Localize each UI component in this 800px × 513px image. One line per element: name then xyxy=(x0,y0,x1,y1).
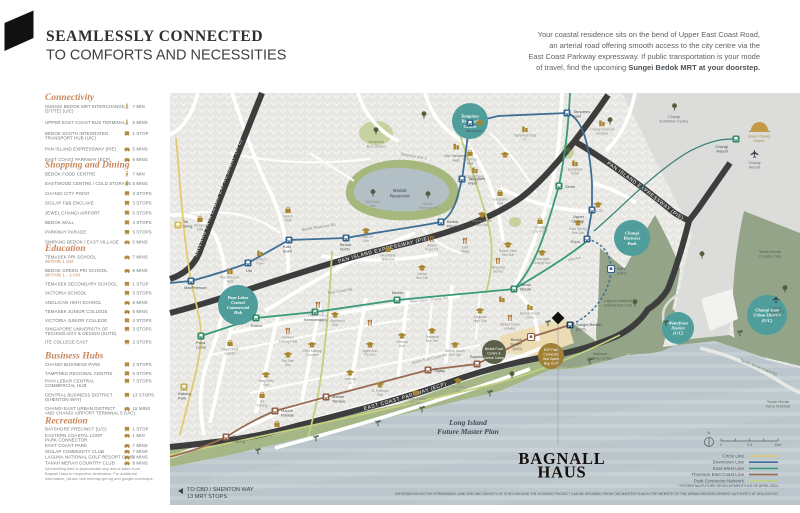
svg-text:VICTORIA SCHOOL: VICTORIA SCHOOL xyxy=(45,291,87,296)
svg-text:6 MINS: 6 MINS xyxy=(133,309,148,314)
svg-text:Circle Line: Circle Line xyxy=(722,454,744,459)
svg-text:3 STOPS: 3 STOPS xyxy=(133,291,152,296)
svg-text:Airport: Airport xyxy=(749,166,761,170)
svg-text:(U/C): (U/C) xyxy=(673,331,684,336)
svg-text:an arterial road offering smoo: an arterial road offering smooth access … xyxy=(549,41,760,50)
svg-text:Changi Sec: Changi Sec xyxy=(533,261,551,265)
svg-text:5 MINS: 5 MINS xyxy=(133,300,148,305)
svg-text:Mall: Mall xyxy=(227,280,233,284)
svg-text:Sec Sch: Sec Sch xyxy=(449,353,462,357)
svg-text:UPPER EAST COAST BUS TERMINAL: UPPER EAST COAST BUS TERMINAL xyxy=(45,120,126,125)
svg-text:WITHIN 1 KM: WITHIN 1 KM xyxy=(45,259,73,264)
svg-text:Hub: Hub xyxy=(453,159,460,163)
svg-text:5 STOPS: 5 STOPS xyxy=(133,371,152,376)
svg-text:HAUS: HAUS xyxy=(537,463,586,482)
svg-text:7 MIN: 7 MIN xyxy=(133,172,145,177)
svg-text:1km: 1km xyxy=(775,443,782,447)
svg-text:7 MINS: 7 MINS xyxy=(133,255,148,260)
svg-text:BEDOK FOOD CENTRE: BEDOK FOOD CENTRE xyxy=(45,172,95,177)
svg-text:5 STOPS: 5 STOPS xyxy=(133,210,152,215)
svg-text:Ubi: Ubi xyxy=(246,268,252,273)
svg-text:North: North xyxy=(340,247,350,252)
svg-text:Our Tampines: Our Tampines xyxy=(444,154,468,158)
svg-text:Airport: Airport xyxy=(753,139,765,143)
svg-text:N: N xyxy=(708,430,711,435)
svg-text:Pri Sch: Pri Sch xyxy=(411,401,422,405)
svg-text:TEMASEK JUNIOR COLLEGE: TEMASEK JUNIOR COLLEGE xyxy=(45,309,108,314)
svg-text:LAGUNA NATIONAL GOLF RESORT CL: LAGUNA NATIONAL GOLF RESORT CLUB xyxy=(45,455,134,460)
svg-text:Your coastal residence sits on: Your coastal residence sits on the bend … xyxy=(538,30,760,39)
svg-text:TANAH MERAH COUNTRY CLUB: TANAH MERAH COUNTRY CLUB xyxy=(45,460,115,465)
svg-text:High Sch: High Sch xyxy=(473,319,487,323)
svg-text:Park: Park xyxy=(178,396,186,401)
svg-text:JEWEL CHANGI AIRPORT: JEWEL CHANGI AIRPORT xyxy=(45,210,100,215)
svg-text:1 STOP: 1 STOP xyxy=(133,282,149,287)
svg-text:Ferry Terminal: Ferry Terminal xyxy=(766,405,790,409)
svg-text:CC: CC xyxy=(523,138,528,142)
svg-text:Pri Sch: Pri Sch xyxy=(470,179,481,183)
svg-text:information, please visit onem: information, please visit onemap.gov.sg … xyxy=(45,476,154,481)
svg-text:Food Ctr: Food Ctr xyxy=(425,248,439,252)
svg-text:(U/C): (U/C) xyxy=(576,327,586,332)
svg-text:Sch: Sch xyxy=(363,239,369,243)
svg-text:BAYSHORE PRECINCT (U/C): BAYSHORE PRECINCT (U/C) xyxy=(45,427,107,432)
svg-text:Park Connector Network: Park Connector Network xyxy=(694,478,745,483)
svg-text:SIGLAP F&B ENCLAVE: SIGLAP F&B ENCLAVE xyxy=(45,201,94,206)
svg-text:TRANSPORT HUB (U/C): TRANSPORT HUB (U/C) xyxy=(45,136,96,141)
svg-text:5 MINS: 5 MINS xyxy=(133,181,148,186)
svg-text:of travel, find the upcoming S: of travel, find the upcoming Sungei Bedo… xyxy=(536,63,760,72)
svg-text:Airport: Airport xyxy=(716,149,729,154)
svg-text:Bedok: Bedok xyxy=(393,188,407,193)
svg-text:1 MIN: 1 MIN xyxy=(133,433,145,438)
svg-text:Hospital: Hospital xyxy=(596,132,608,136)
svg-text:Bedok Camp: Bedok Camp xyxy=(484,356,504,360)
svg-text:PARKWAY PARADE: PARKWAY PARADE xyxy=(45,230,86,235)
svg-text:Camp: Camp xyxy=(525,316,534,320)
svg-text:Mall: Mall xyxy=(197,228,203,232)
svg-text:8 MINS: 8 MINS xyxy=(133,460,148,465)
svg-text:7 MINS: 7 MINS xyxy=(133,449,148,454)
svg-text:Sec Sch: Sec Sch xyxy=(502,253,515,257)
svg-text:JC: JC xyxy=(348,381,353,385)
svg-text:Mall: Mall xyxy=(285,219,291,223)
svg-text:5 MINS: 5 MINS xyxy=(133,147,148,152)
svg-text:Country Club: Country Club xyxy=(759,255,781,259)
svg-text:East Coast Parkway expressway.: East Coast Parkway expressway. If public… xyxy=(528,52,760,61)
svg-text:Siglap: Siglap xyxy=(434,368,446,373)
svg-text:MacPherson: MacPherson xyxy=(184,285,206,290)
svg-text:Long Island: Long Island xyxy=(448,418,487,427)
svg-text:7 STOPS: 7 STOPS xyxy=(133,379,152,384)
svg-text:Mall: Mall xyxy=(497,202,503,206)
svg-text:1 STOP: 1 STOP xyxy=(133,131,149,136)
svg-text:Quarter: Quarter xyxy=(224,352,236,356)
svg-text:WITHIN 1 - 2 KM: WITHIN 1 - 2 KM xyxy=(45,273,80,278)
svg-text:East-West Line: East-West Line xyxy=(713,466,745,471)
svg-text:CHANGI BUSINESS PARK: CHANGI BUSINESS PARK xyxy=(45,362,100,367)
svg-text:Sec Sch: Sec Sch xyxy=(416,276,429,280)
svg-text:PARK CONNECTOR: PARK CONNECTOR xyxy=(45,438,87,443)
svg-text:Changi: Changi xyxy=(748,161,760,165)
svg-text:Laguna National: Laguna National xyxy=(604,299,632,303)
svg-text:Business Hubs: Business Hubs xyxy=(44,352,104,362)
svg-text:1 STOP: 1 STOP xyxy=(133,427,149,432)
svg-text:F&B Enclave: F&B Enclave xyxy=(308,314,328,318)
svg-text:Eunos: Eunos xyxy=(251,323,262,328)
svg-text:13 MRT STOPS: 13 MRT STOPS xyxy=(187,494,227,500)
svg-text:TAMPINES REGIONAL CENTRE: TAMPINES REGIONAL CENTRE xyxy=(45,371,113,376)
svg-text:4 STOPS: 4 STOPS xyxy=(133,318,152,323)
svg-text:Sec Sch: Sec Sch xyxy=(572,231,585,235)
svg-text:SUTD: SUTD xyxy=(593,209,603,213)
svg-text:Lebar: Lebar xyxy=(196,345,207,350)
svg-text:Recreation: Recreation xyxy=(44,417,88,427)
svg-text:ITE COLLEGE EAST: ITE COLLEGE EAST xyxy=(45,340,88,345)
svg-text:Future Master Plan: Future Master Plan xyxy=(437,427,499,436)
svg-text:Tanah Merah: Tanah Merah xyxy=(759,250,781,254)
svg-text:Thomson East Coast Line: Thomson East Coast Line xyxy=(691,472,744,477)
svg-text:Terrace: Terrace xyxy=(332,399,346,404)
svg-text:Simei: Simei xyxy=(565,184,575,189)
svg-text:Airport T5: Airport T5 xyxy=(768,311,784,315)
svg-text:Sch: Sch xyxy=(377,393,383,397)
svg-text:(DT/TE) (U/C): (DT/TE) (U/C) xyxy=(45,109,74,114)
svg-text:Tampines: Tampines xyxy=(368,140,384,144)
svg-text:3 STOPS: 3 STOPS xyxy=(133,191,152,196)
svg-text:Changi: Changi xyxy=(668,115,680,119)
svg-text:Expo: Expo xyxy=(571,239,581,244)
svg-text:City Point: City Point xyxy=(533,230,548,234)
svg-text:Sch: Sch xyxy=(285,363,291,367)
svg-text:Sailing Centre: Sailing Centre xyxy=(588,357,612,361)
svg-text:EAST COAST PARK: EAST COAST PARK xyxy=(45,443,87,448)
svg-text:2 STOPS: 2 STOPS xyxy=(133,340,152,345)
svg-text:BEDOK MALL: BEDOK MALL xyxy=(45,220,75,225)
svg-text:AND CHANGI AIRPORT TERMINAL 5: AND CHANGI AIRPORT TERMINAL 5 (U/C) xyxy=(45,411,135,416)
svg-text:VICTORIA JUNIOR COLLEGE: VICTORIA JUNIOR COLLEGE xyxy=(45,318,107,323)
svg-text:TECHNOLOGY & DESIGN (SUTD): TECHNOLOGY & DESIGN (SUTD) xyxy=(45,331,117,336)
svg-text:2 STOPS: 2 STOPS xyxy=(133,362,152,367)
svg-text:Katong F&B: Katong F&B xyxy=(279,340,298,344)
svg-text:Sec Sch: Sec Sch xyxy=(426,339,439,343)
svg-text:Shopping and Dining: Shopping and Dining xyxy=(45,161,130,171)
svg-text:9 MINS: 9 MINS xyxy=(133,157,148,162)
svg-text:Bedok: Bedok xyxy=(392,290,403,295)
svg-text:East: East xyxy=(573,114,582,119)
svg-text:National: National xyxy=(593,352,607,356)
svg-text:TEMASEK SECONDARY SCHOOL: TEMASEK SECONDARY SCHOOL xyxy=(45,282,117,287)
svg-text:Connectivity: Connectivity xyxy=(45,93,95,103)
svg-text:Education: Education xyxy=(44,244,86,254)
svg-text:SEAMLESSLY CONNECTED: SEAMLESSLY CONNECTED xyxy=(46,28,263,45)
svg-text:ECP Park: ECP Park xyxy=(544,348,559,352)
svg-text:Katong: Katong xyxy=(232,439,245,444)
svg-text:Simei: Simei xyxy=(571,172,580,176)
svg-text:Golf Resort Club: Golf Resort Club xyxy=(604,304,632,308)
svg-text:PAN ISLAND EXPRESSWAY (PIE): PAN ISLAND EXPRESSWAY (PIE) xyxy=(45,147,117,152)
svg-text:Centre &: Centre & xyxy=(487,352,501,356)
svg-text:TO CBD / SHENTON WAY: TO CBD / SHENTON WAY xyxy=(187,487,254,493)
svg-text:9 MINS: 9 MINS xyxy=(133,455,148,460)
svg-text:Katong: Katong xyxy=(257,404,268,408)
svg-text:(SHENTON WAY): (SHENTON WAY) xyxy=(45,397,82,402)
svg-text:Sch: Sch xyxy=(263,383,269,387)
svg-text:* POTENTIAL/FUTURE DEVELOPMENT: * POTENTIAL/FUTURE DEVELOPMENTS AS OF AP… xyxy=(678,484,778,488)
svg-text:Changi: Changi xyxy=(770,306,782,310)
svg-text:Bedok Food: Bedok Food xyxy=(485,347,503,351)
svg-text:5 STOPS: 5 STOPS xyxy=(133,230,152,235)
svg-text:Merah: Merah xyxy=(520,287,531,292)
svg-text:3 STOPS: 3 STOPS xyxy=(133,201,152,206)
svg-text:Downtown Line: Downtown Line xyxy=(713,460,745,465)
svg-text:6 MINS: 6 MINS xyxy=(133,268,148,273)
svg-text:Sch: Sch xyxy=(332,323,338,327)
svg-text:5 MINS: 5 MINS xyxy=(133,239,148,244)
svg-text:0: 0 xyxy=(720,443,722,447)
svg-text:13 STOPS: 13 STOPS xyxy=(133,393,155,398)
svg-text:Village: Village xyxy=(460,250,470,254)
svg-text:Park: Park xyxy=(257,262,264,266)
svg-text:Seng: Seng xyxy=(183,224,192,229)
svg-text:Sec Sch: Sec Sch xyxy=(476,223,489,227)
svg-text:Parade: Parade xyxy=(281,413,295,418)
svg-text:(U/C): (U/C) xyxy=(772,315,781,319)
svg-text:JC: JC xyxy=(456,389,461,393)
svg-text:COMMERCIAL HUB: COMMERCIAL HUB xyxy=(45,383,87,388)
svg-text:Connector: Connector xyxy=(543,353,559,357)
svg-text:Hawker: Hawker xyxy=(504,327,516,331)
svg-text:Convent: Convent xyxy=(306,353,319,357)
svg-text:Tanah Merah: Tanah Merah xyxy=(767,400,789,404)
svg-text:5 MINS: 5 MINS xyxy=(133,120,148,125)
svg-text:Reservoir Pk: Reservoir Pk xyxy=(419,206,438,210)
svg-text:Tampines: Tampines xyxy=(465,128,482,133)
svg-text:Bay, ECP: Bay, ECP xyxy=(544,362,559,366)
svg-text:TO COMFORTS AND NECESSITIES: TO COMFORTS AND NECESSITIES xyxy=(46,48,286,64)
svg-text:4 STOPS: 4 STOPS xyxy=(133,220,152,225)
svg-text:Hub: Hub xyxy=(233,310,243,315)
svg-text:7 MIN: 7 MIN xyxy=(133,104,145,109)
svg-text:EASTWOOD CENTRE / COLD STORAGE: EASTWOOD CENTRE / COLD STORAGE xyxy=(45,181,131,186)
svg-text:Jewel Changi: Jewel Changi xyxy=(748,135,771,139)
svg-text:Reservoir: Reservoir xyxy=(390,194,411,199)
svg-text:Eco Green: Eco Green xyxy=(367,145,385,149)
svg-text:0.5: 0.5 xyxy=(747,443,752,447)
svg-text:15 MINS: 15 MINS xyxy=(133,406,151,411)
svg-text:Wet: Wet xyxy=(370,204,376,208)
svg-text:CHANGI CITY POINT: CHANGI CITY POINT xyxy=(45,191,90,196)
svg-text:Bukit: Bukit xyxy=(283,249,293,254)
svg-text:INFORMATION ON THE PERMISSIBLE: INFORMATION ON THE PERMISSIBLE LAND USE … xyxy=(395,492,778,496)
svg-text:Bedok: Bedok xyxy=(493,270,503,274)
svg-text:Sch: Sch xyxy=(399,344,405,348)
svg-text:Mall: Mall xyxy=(467,162,473,166)
svg-text:Exhibition Centre: Exhibition Centre xyxy=(660,120,689,124)
svg-text:Reservoir: Reservoir xyxy=(447,224,465,229)
svg-text:ANGLICAN HIGH SCHOOL: ANGLICAN HIGH SCHOOL xyxy=(45,300,102,305)
svg-text:@Bedok: @Bedok xyxy=(381,258,394,262)
svg-text:Park: Park xyxy=(627,241,637,246)
svg-text:7 MINS: 7 MINS xyxy=(133,443,148,448)
svg-text:3 STOPS: 3 STOPS xyxy=(133,327,152,332)
svg-text:Bayshore: Bayshore xyxy=(470,354,488,359)
svg-text:SIGLAP COMMUNITY CLUB: SIGLAP COMMUNITY CLUB xyxy=(45,449,104,454)
svg-text:Pri Sch: Pri Sch xyxy=(365,353,376,357)
svg-text:(U/C): (U/C) xyxy=(617,271,627,276)
svg-text:Sea Sports: Sea Sports xyxy=(543,357,560,361)
svg-text:(U/C): (U/C) xyxy=(512,346,522,351)
svg-text:Kembangan: Kembangan xyxy=(304,317,326,322)
